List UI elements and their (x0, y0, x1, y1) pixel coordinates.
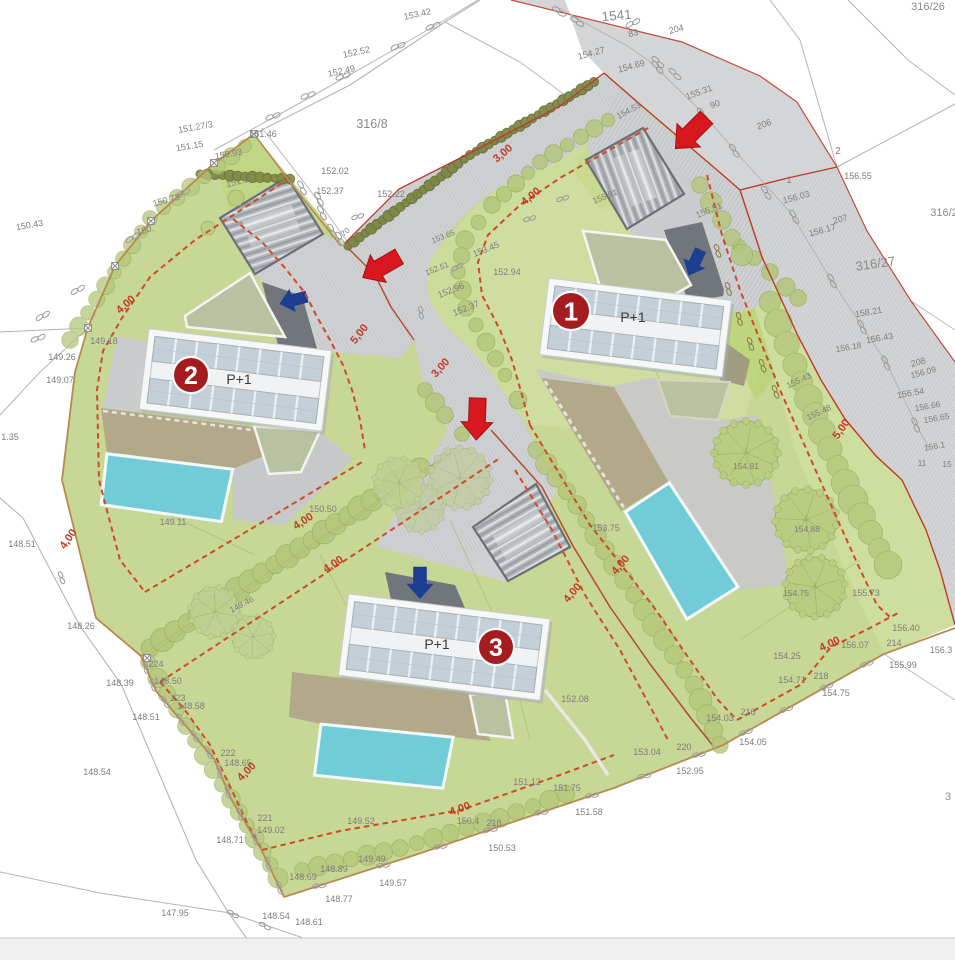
svg-text:1: 1 (564, 296, 578, 326)
svg-text:149.52: 149.52 (347, 816, 375, 826)
svg-text:156.07: 156.07 (841, 640, 869, 650)
svg-text:214: 214 (886, 638, 901, 648)
svg-text:148.26: 148.26 (67, 621, 95, 631)
svg-text:156.40: 156.40 (892, 623, 920, 633)
svg-text:316/26: 316/26 (911, 1, 945, 13)
svg-text:152.94: 152.94 (493, 267, 521, 277)
svg-text:148.39: 148.39 (106, 678, 134, 688)
svg-text:154.88: 154.88 (794, 524, 820, 534)
svg-text:154.05: 154.05 (739, 737, 767, 747)
svg-text:154.75: 154.75 (822, 688, 850, 698)
svg-text:154.25: 154.25 (773, 651, 801, 661)
svg-text:155.99: 155.99 (889, 660, 917, 670)
svg-text:151.75: 151.75 (553, 783, 581, 793)
svg-text:151.46: 151.46 (249, 129, 277, 139)
svg-text:152.22: 152.22 (377, 189, 405, 199)
svg-text:148.54: 148.54 (262, 911, 290, 921)
svg-text:152.02: 152.02 (321, 166, 349, 176)
svg-text:148.77: 148.77 (325, 894, 353, 904)
svg-text:148.51: 148.51 (132, 712, 160, 722)
svg-text:149.02: 149.02 (257, 825, 285, 835)
svg-text:3: 3 (489, 634, 503, 662)
svg-text:P+1: P+1 (620, 309, 646, 325)
svg-text:148.69: 148.69 (289, 872, 317, 882)
svg-text:P+1: P+1 (226, 371, 252, 387)
svg-text:148.89: 148.89 (320, 864, 348, 874)
svg-text:156.55: 156.55 (844, 171, 872, 181)
svg-text:2: 2 (184, 362, 198, 390)
svg-text:155.73: 155.73 (852, 588, 880, 598)
svg-text:151.58: 151.58 (575, 807, 603, 817)
svg-text:156.3: 156.3 (930, 645, 953, 655)
svg-text:149.18: 149.18 (90, 336, 118, 346)
svg-text:148.58: 148.58 (177, 701, 205, 711)
svg-text:P+1: P+1 (424, 636, 450, 652)
svg-text:154.81: 154.81 (733, 461, 759, 471)
svg-text:152.95: 152.95 (676, 766, 704, 776)
svg-text:154.75: 154.75 (783, 588, 809, 598)
svg-text:2: 2 (835, 146, 841, 157)
svg-text:316/2: 316/2 (930, 207, 955, 219)
svg-text:222: 222 (220, 748, 235, 758)
svg-text:216: 216 (740, 707, 755, 717)
svg-text:152.08: 152.08 (561, 694, 589, 704)
svg-text:154.71: 154.71 (778, 675, 806, 685)
svg-text:149.57: 149.57 (379, 878, 407, 888)
svg-text:154.03: 154.03 (706, 713, 734, 723)
svg-text:151.12: 151.12 (513, 777, 541, 787)
svg-text:3: 3 (945, 791, 951, 803)
svg-text:15: 15 (942, 459, 952, 469)
svg-text:1541: 1541 (601, 7, 632, 25)
svg-text:11: 11 (918, 458, 927, 468)
svg-text:220: 220 (676, 742, 691, 752)
svg-text:148.71: 148.71 (216, 835, 244, 845)
svg-text:218: 218 (486, 818, 501, 828)
svg-text:150.4: 150.4 (457, 816, 480, 826)
svg-text:1: 1 (786, 175, 791, 185)
svg-text:152.37: 152.37 (316, 186, 344, 196)
svg-text:148.51: 148.51 (8, 539, 36, 549)
svg-text:149.07: 149.07 (46, 375, 74, 385)
svg-text:1.35: 1.35 (1, 432, 19, 442)
svg-text:153.04: 153.04 (633, 747, 661, 757)
svg-text:150.53: 150.53 (488, 843, 516, 853)
svg-text:218: 218 (813, 671, 828, 681)
svg-text:148.61: 148.61 (295, 917, 323, 927)
svg-text:148.50: 148.50 (154, 676, 182, 686)
svg-text:148.54: 148.54 (83, 767, 111, 777)
svg-text:149.49: 149.49 (358, 854, 386, 864)
svg-text:149.26: 149.26 (48, 352, 76, 362)
svg-text:316/8: 316/8 (356, 117, 387, 131)
svg-text:224: 224 (148, 659, 163, 669)
svg-text:149.11: 149.11 (160, 517, 187, 527)
svg-text:150.50: 150.50 (309, 504, 337, 514)
svg-text:221: 221 (257, 813, 272, 823)
svg-text:153.75: 153.75 (592, 523, 620, 533)
svg-text:147.95: 147.95 (161, 908, 189, 918)
